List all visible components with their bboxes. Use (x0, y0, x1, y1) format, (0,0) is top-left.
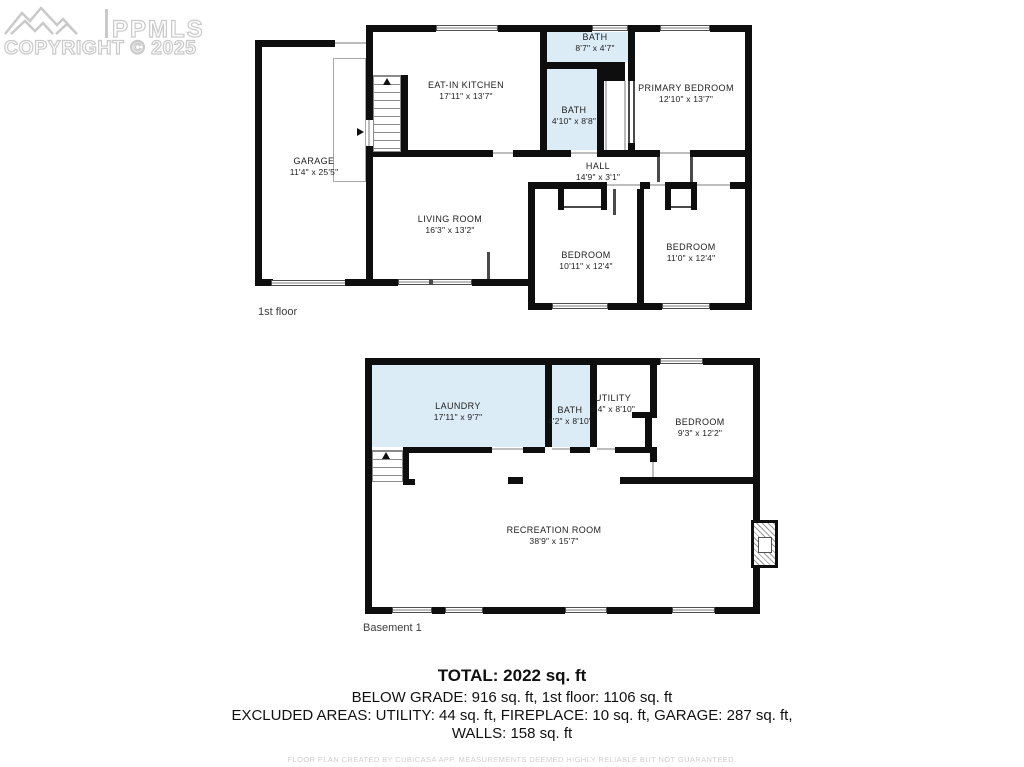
closet-wall (605, 81, 607, 150)
door-opening (660, 152, 690, 154)
grade-areas-text: BELOW GRADE: 916 sq. ft, 1st floor: 1106… (0, 689, 1024, 706)
entry-arrow-icon (357, 128, 364, 136)
wall (597, 69, 604, 157)
room-label-bedroom-1: BEDROOM 10'11" x 12'4" (559, 250, 613, 272)
wall (703, 358, 760, 365)
disclaimer-text: FLOOR PLAN CREATED BY CUBICASA APP. MEAS… (0, 755, 1024, 764)
walls-area-text: WALLS: 158 sq. ft (0, 725, 1024, 742)
closet-door (564, 206, 601, 208)
wall (365, 358, 372, 614)
room-label-bath-basement: BATH 4'2" x 8'10" (548, 405, 592, 427)
wall (665, 182, 697, 189)
door-opening (650, 184, 665, 186)
room-label-kitchen: EAT-IN KITCHEN 17'11" x 13'7" (428, 80, 504, 102)
floorplan-page: PPMLS COPYRIGHT © 2025 (0, 0, 1024, 767)
wall (498, 25, 545, 32)
door-opening (697, 184, 730, 186)
wall (403, 479, 415, 485)
door-opening (492, 448, 523, 450)
wall (608, 303, 662, 310)
wall (366, 25, 436, 32)
room-label-laundry: LAUNDRY 17'11" x 9'7" (434, 401, 483, 423)
wall (570, 447, 590, 453)
closet-wall (691, 189, 697, 210)
wall (637, 189, 644, 310)
room-label-recreation-room: RECREATION ROOM 38'9" x 15'7" (507, 525, 602, 547)
stairs-up-arrow-icon (383, 78, 391, 85)
wall (403, 447, 492, 453)
wall (597, 150, 633, 157)
room-label-bath-mid: BATH 4'10" x 8'8" (552, 105, 596, 127)
wall (365, 607, 392, 614)
room-label-bedroom-basement: BEDROOM 9'3" x 12'2" (675, 417, 724, 439)
wall (366, 279, 398, 286)
wall (508, 477, 523, 484)
logo-divider (105, 9, 108, 38)
fireplace (751, 520, 778, 568)
wall (745, 25, 752, 310)
door-opening (552, 448, 570, 450)
door-jamb (657, 157, 660, 182)
garage-door (271, 280, 346, 286)
wall (545, 25, 592, 32)
window (592, 25, 628, 31)
wall (710, 303, 752, 310)
wall (645, 418, 652, 450)
closet-wall (624, 81, 626, 150)
room-label-hall: HALL 14'9" x 3'1" (576, 161, 620, 183)
door-opening (493, 152, 513, 154)
wall (528, 303, 552, 310)
wall (690, 150, 752, 157)
door-opening (652, 462, 654, 478)
window (660, 358, 703, 364)
wall (628, 25, 635, 81)
ppmls-logo: PPMLS COPYRIGHT © 2025 (4, 4, 224, 64)
floor-label-basement: Basement 1 (363, 622, 422, 634)
door-jamb (690, 157, 693, 182)
mountains-icon (4, 4, 104, 38)
room-label-living-room: LIVING ROOM 16'3" x 13'2" (418, 214, 482, 236)
door-opening (335, 42, 366, 44)
wall (715, 607, 760, 614)
wall (650, 358, 657, 418)
window (392, 607, 432, 613)
room-label-bedroom-2: BEDROOM 11'0" x 12'4" (666, 242, 715, 264)
wall (432, 607, 445, 614)
area-summary: TOTAL: 2022 sq. ft BELOW GRADE: 916 sq. … (0, 666, 1024, 764)
door-opening (571, 152, 597, 154)
window (445, 607, 483, 613)
wall (528, 182, 535, 310)
closet-door (671, 206, 691, 208)
wall (540, 62, 600, 69)
wall (483, 607, 565, 614)
logo-copyright-text: COPYRIGHT © 2025 (4, 37, 197, 60)
window (672, 607, 715, 613)
wall (620, 477, 753, 484)
door-opening (368, 120, 370, 146)
window (660, 25, 710, 31)
stairs-up-arrow-icon (382, 452, 390, 459)
excluded-areas-text: EXCLUDED AREAS: UTILITY: 44 sq. ft, FIRE… (0, 707, 1024, 724)
wall (650, 450, 657, 462)
window (436, 25, 498, 31)
wall (401, 75, 408, 152)
floor-label-1st: 1st floor (258, 306, 297, 318)
window (565, 607, 607, 613)
closet-door (628, 81, 630, 143)
wall (633, 150, 660, 157)
wall (640, 182, 650, 189)
wall (255, 40, 335, 47)
wall (255, 40, 262, 286)
wall (730, 182, 752, 189)
wall (607, 607, 672, 614)
room-label-utility: UTILITY 6'4" x 8'10" (591, 393, 635, 415)
window-mullion (429, 279, 433, 285)
door-opening (607, 184, 640, 186)
room-label-garage: GARAGE 11'4" x 25'5" (290, 156, 339, 178)
door-opening (597, 448, 615, 450)
total-area-text: TOTAL: 2022 sq. ft (0, 666, 1024, 686)
closet-wall (601, 189, 607, 210)
wall (547, 150, 571, 157)
wall (513, 150, 540, 157)
closet-door (633, 81, 635, 143)
room-label-bath-top: BATH 8'7" x 4'7" (575, 32, 614, 54)
door-leaf (613, 189, 616, 215)
room-label-primary-bedroom: PRIMARY BEDROOM 12'10" x 13'7" (638, 83, 734, 105)
wall (753, 358, 760, 614)
wall (472, 279, 528, 286)
staircase (373, 75, 401, 152)
door-leaf (487, 252, 490, 279)
wall (365, 358, 660, 365)
fireplace-core (758, 537, 772, 553)
wall (523, 447, 545, 453)
wall (535, 182, 558, 189)
window (552, 303, 608, 309)
window (398, 279, 472, 285)
window (662, 303, 710, 309)
wall (540, 25, 547, 157)
